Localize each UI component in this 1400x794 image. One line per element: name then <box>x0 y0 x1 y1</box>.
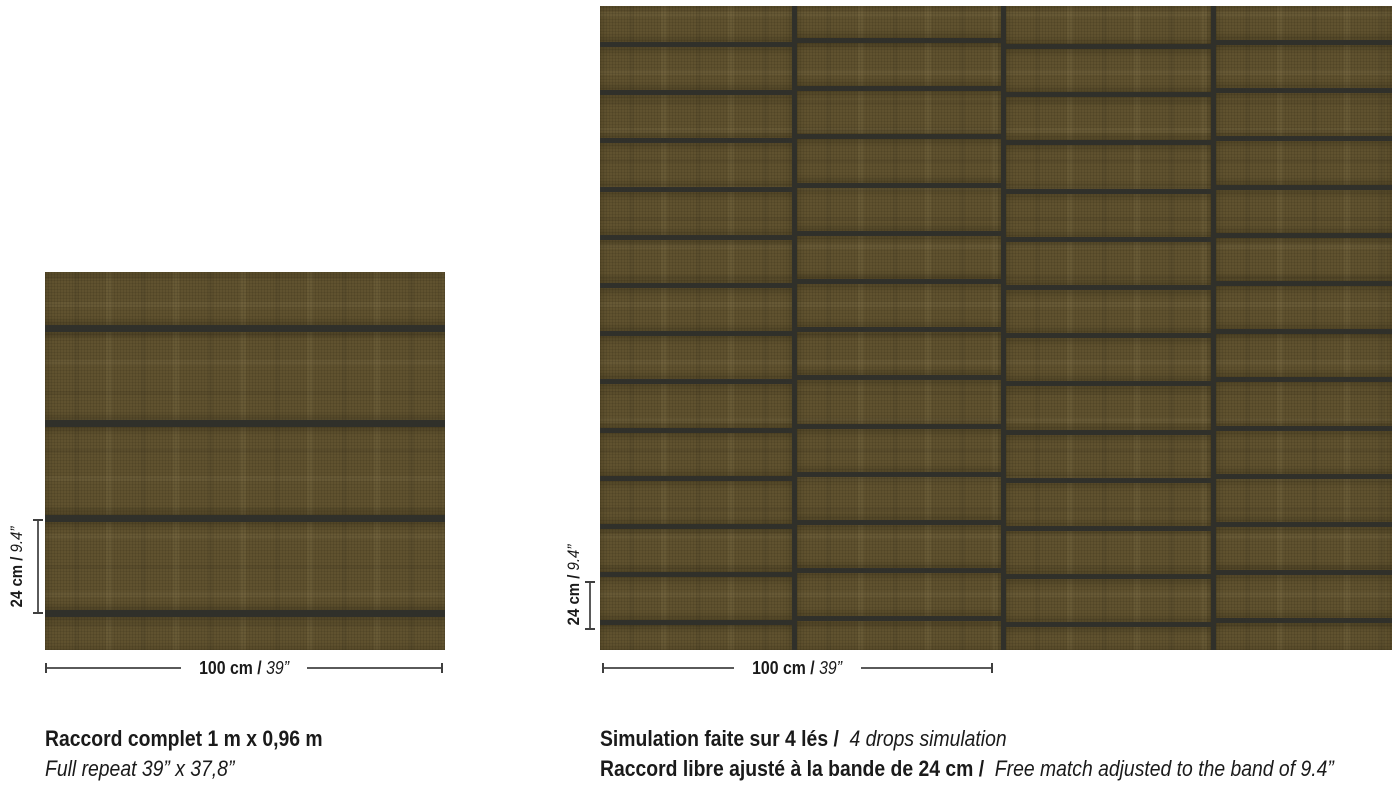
left-width-dimension-label: 100 cm / 39” <box>199 660 289 676</box>
band-separator-line <box>600 572 792 577</box>
band-separator-line <box>795 375 1001 380</box>
dimension-value-metric: 100 cm <box>753 658 807 678</box>
left-height-dimension-label: 24 cm / 9.4” <box>6 479 28 655</box>
spec-sheet: 24 cm / 9.4” 100 cm / 39” Raccord comple… <box>0 0 1400 794</box>
band-separator-line <box>600 138 792 143</box>
band-separator-line <box>45 325 445 332</box>
left-caption-french: Raccord complet 1 m x 0,96 m <box>45 724 323 754</box>
dimension-value-imperial: 39” <box>266 658 289 678</box>
band-separator-line <box>600 283 792 288</box>
right-width-dimension-label: 100 cm / 39” <box>753 660 843 676</box>
band-separator-line <box>795 616 1001 621</box>
right-height-dimension-tick-top <box>585 581 595 583</box>
band-separator-line <box>600 524 792 529</box>
band-separator-line <box>1214 474 1392 479</box>
right-caption-line2-english: Free match adjusted to the band of 9.4” <box>995 756 1334 781</box>
right-height-dimension-line <box>589 582 591 630</box>
right-height-dimension-label: 24 cm / 9.4” <box>563 497 585 673</box>
right-width-dimension-line-left <box>604 667 734 669</box>
left-caption: Raccord complet 1 m x 0,96 m Full repeat… <box>45 724 360 784</box>
band-separator-line <box>1004 140 1211 145</box>
wallpaper-drop-2 <box>792 6 1001 650</box>
dimension-value-metric: 100 cm <box>199 658 253 678</box>
band-separator-line <box>600 620 792 625</box>
band-separator-line <box>795 327 1001 332</box>
full-repeat-swatch <box>45 272 445 650</box>
dimension-value-imperial: 9.4” <box>7 527 26 553</box>
left-height-dimension-tick-bottom <box>33 612 43 614</box>
simulation-panel <box>600 6 1392 650</box>
band-separator-line <box>1214 618 1392 623</box>
band-separator-line <box>795 231 1001 236</box>
left-caption-english: Full repeat 39” x 37,8” <box>45 754 323 784</box>
right-caption-line1: Simulation faite sur 4 lés / 4 drops sim… <box>600 724 1334 754</box>
right-height-dimension-tick-bottom <box>585 628 595 630</box>
right-width-dimension-tick-right <box>991 663 993 673</box>
left-height-dimension-line <box>37 520 39 614</box>
band-separator-line <box>1004 237 1211 242</box>
band-separator-line <box>1004 333 1211 338</box>
wallpaper-drop-3 <box>1001 6 1211 650</box>
dimension-value-imperial: 39” <box>820 658 843 678</box>
left-width-dimension-line-right <box>307 667 441 669</box>
left-width-dimension-tick-right <box>441 663 443 673</box>
band-separator-line <box>1004 285 1211 290</box>
band-separator-line <box>795 472 1001 477</box>
right-caption-line1-english: 4 drops simulation <box>850 726 1007 751</box>
band-separator-line <box>600 331 792 336</box>
band-separator-line <box>45 610 445 617</box>
left-width-dimension-line-left <box>47 667 181 669</box>
band-separator-line <box>1214 329 1392 334</box>
band-separator-line <box>1004 622 1211 627</box>
dimension-value-metric: 24 cm <box>7 565 26 607</box>
band-separator-line <box>1214 426 1392 431</box>
band-separator-line <box>795 183 1001 188</box>
band-separator-line <box>1004 189 1211 194</box>
right-caption-line1-french: Simulation faite sur 4 lés / <box>600 726 839 751</box>
band-separator-line <box>1004 430 1211 435</box>
band-separator-line <box>1004 574 1211 579</box>
band-separator-line <box>600 187 792 192</box>
band-separator-line <box>795 86 1001 91</box>
band-separator-line <box>1004 526 1211 531</box>
dimension-value-metric: 24 cm <box>564 583 583 625</box>
band-separator-line <box>45 420 445 427</box>
right-width-dimension: 100 cm / 39” <box>602 660 993 676</box>
right-caption-line2: Raccord libre ajusté à la bande de 24 cm… <box>600 754 1334 784</box>
band-separator-line <box>600 476 792 481</box>
band-separator-line <box>795 279 1001 284</box>
left-width-dimension: 100 cm / 39” <box>45 660 443 676</box>
band-separator-line <box>1214 570 1392 575</box>
right-caption: Simulation faite sur 4 lés / 4 drops sim… <box>600 724 1400 784</box>
band-separator-line <box>795 568 1001 573</box>
wallpaper-drop-4 <box>1211 6 1392 650</box>
band-separator-line <box>1214 281 1392 286</box>
band-separator-line <box>1214 40 1392 45</box>
right-caption-line2-french: Raccord libre ajusté à la bande de 24 cm… <box>600 756 984 781</box>
left-height-dimension-tick-top <box>33 519 43 521</box>
band-separator-line <box>1214 233 1392 238</box>
band-separator-line <box>600 379 792 384</box>
band-separator-line <box>795 520 1001 525</box>
band-separator-line <box>795 134 1001 139</box>
left-caption-english-text: Full repeat 39” x 37,8” <box>45 756 234 781</box>
wallpaper-drop-1 <box>600 6 792 650</box>
band-separator-line <box>45 515 445 522</box>
band-separator-line <box>1214 522 1392 527</box>
band-separator-line <box>600 428 792 433</box>
band-separator-line <box>1214 88 1392 93</box>
band-separator-line <box>1004 381 1211 386</box>
band-separator-line <box>1214 136 1392 141</box>
right-width-dimension-line-right <box>861 667 991 669</box>
band-separator-line <box>1214 377 1392 382</box>
band-separator-line <box>1004 478 1211 483</box>
band-separator-line <box>1004 44 1211 49</box>
band-separator-line <box>600 235 792 240</box>
band-separator-line <box>1004 92 1211 97</box>
band-separator-line <box>600 42 792 47</box>
band-separator-line <box>795 38 1001 43</box>
band-separator-line <box>1214 185 1392 190</box>
dimension-value-imperial: 9.4” <box>564 545 583 571</box>
left-caption-french-text: Raccord complet 1 m x 0,96 m <box>45 726 323 751</box>
band-separator-line <box>600 90 792 95</box>
band-separator-line <box>795 424 1001 429</box>
